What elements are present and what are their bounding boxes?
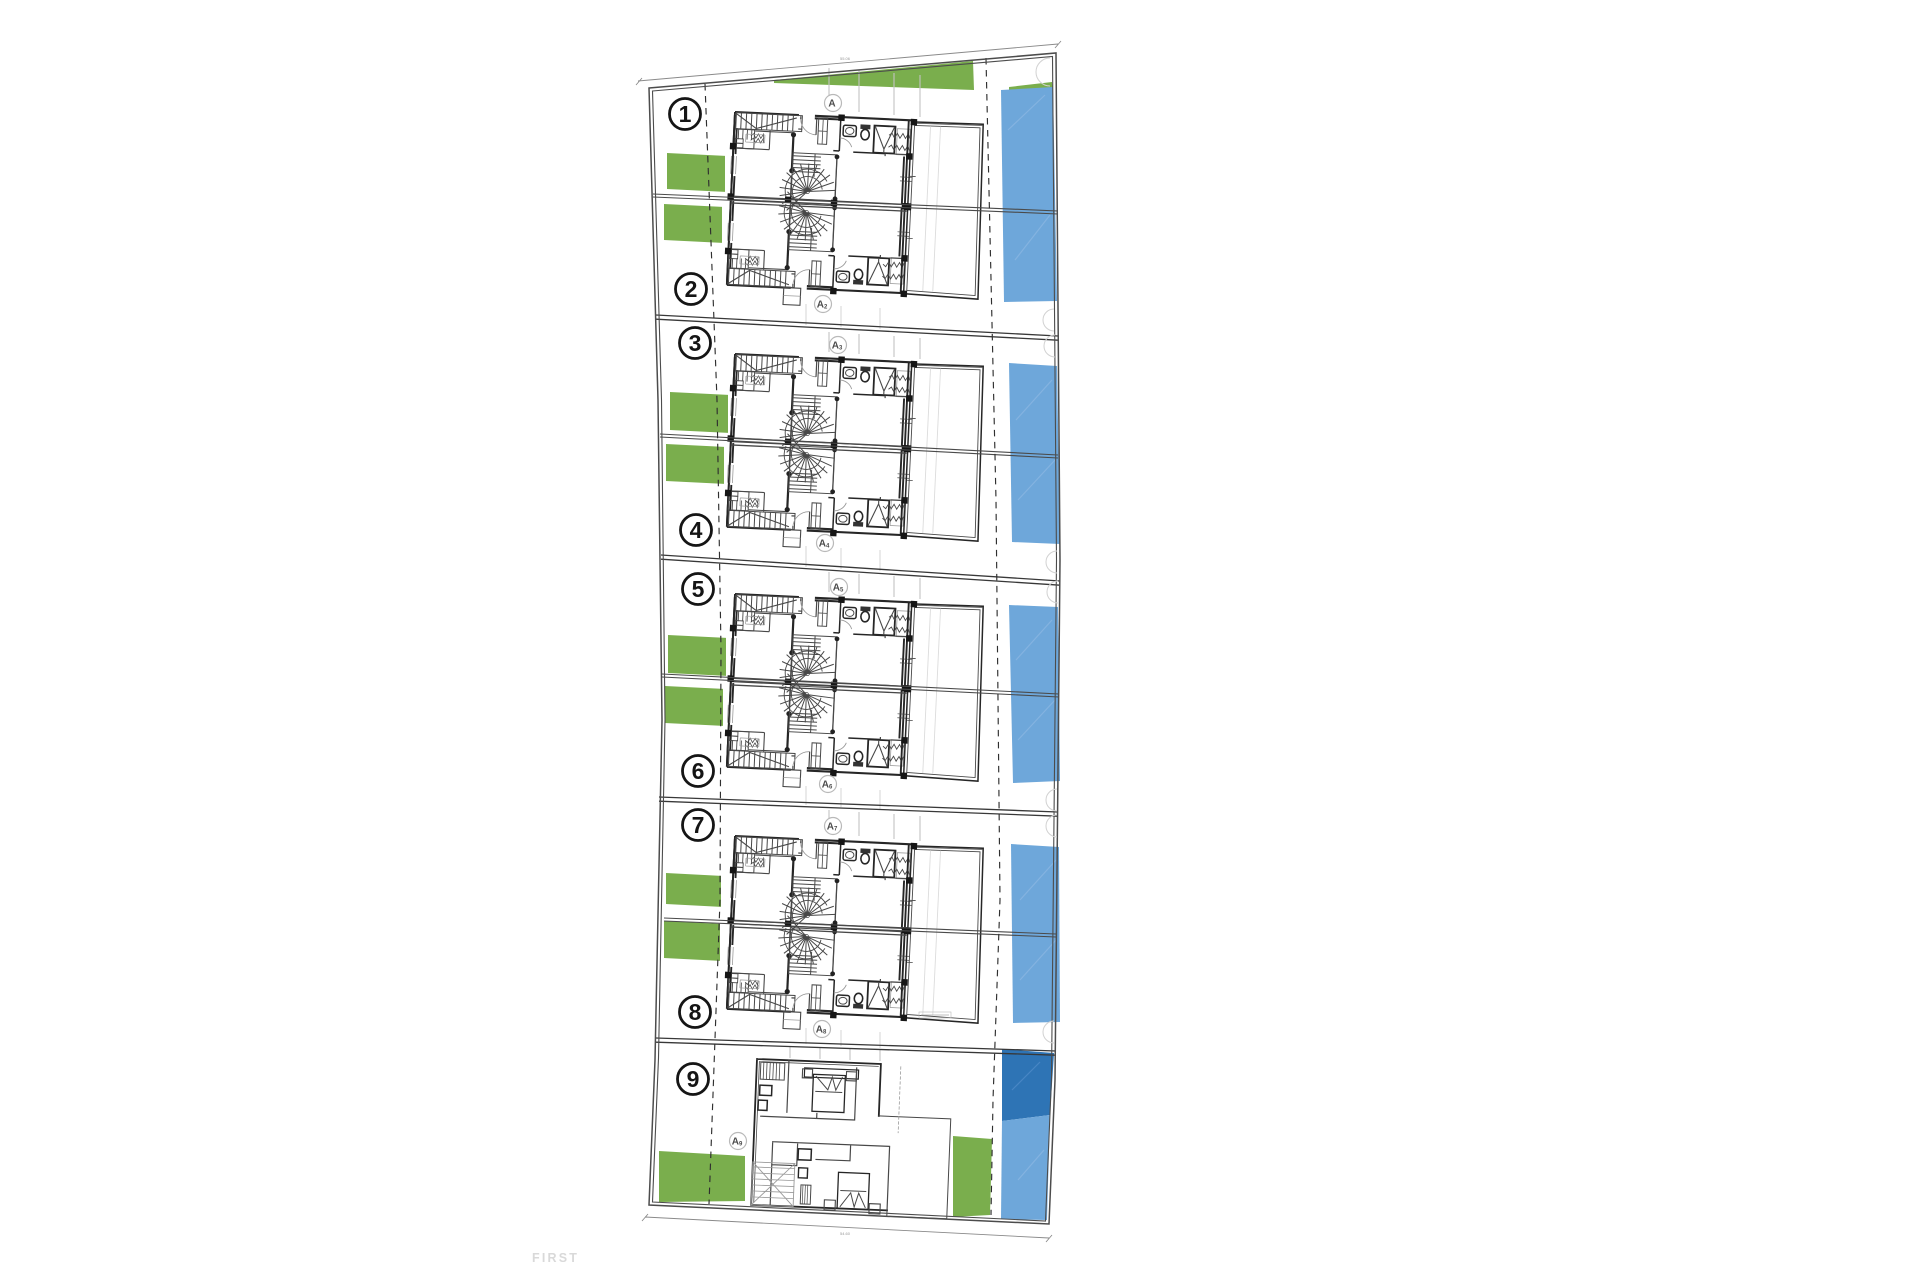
svg-text:6: 6 (692, 758, 705, 784)
svg-text:FIRST: FIRST (532, 1251, 579, 1265)
svg-text:54.60: 54.60 (840, 1231, 851, 1236)
svg-text:4: 4 (690, 517, 703, 543)
svg-text:5: 5 (692, 576, 705, 602)
svg-text:7: 7 (692, 812, 705, 838)
svg-text:8: 8 (689, 999, 702, 1025)
svg-text:3: 3 (689, 330, 702, 356)
svg-text:9: 9 (687, 1066, 700, 1092)
svg-text:1: 1 (679, 101, 692, 127)
svg-text:2: 2 (685, 276, 698, 302)
svg-text:55.06: 55.06 (840, 56, 851, 61)
svg-text:A: A (828, 99, 835, 110)
